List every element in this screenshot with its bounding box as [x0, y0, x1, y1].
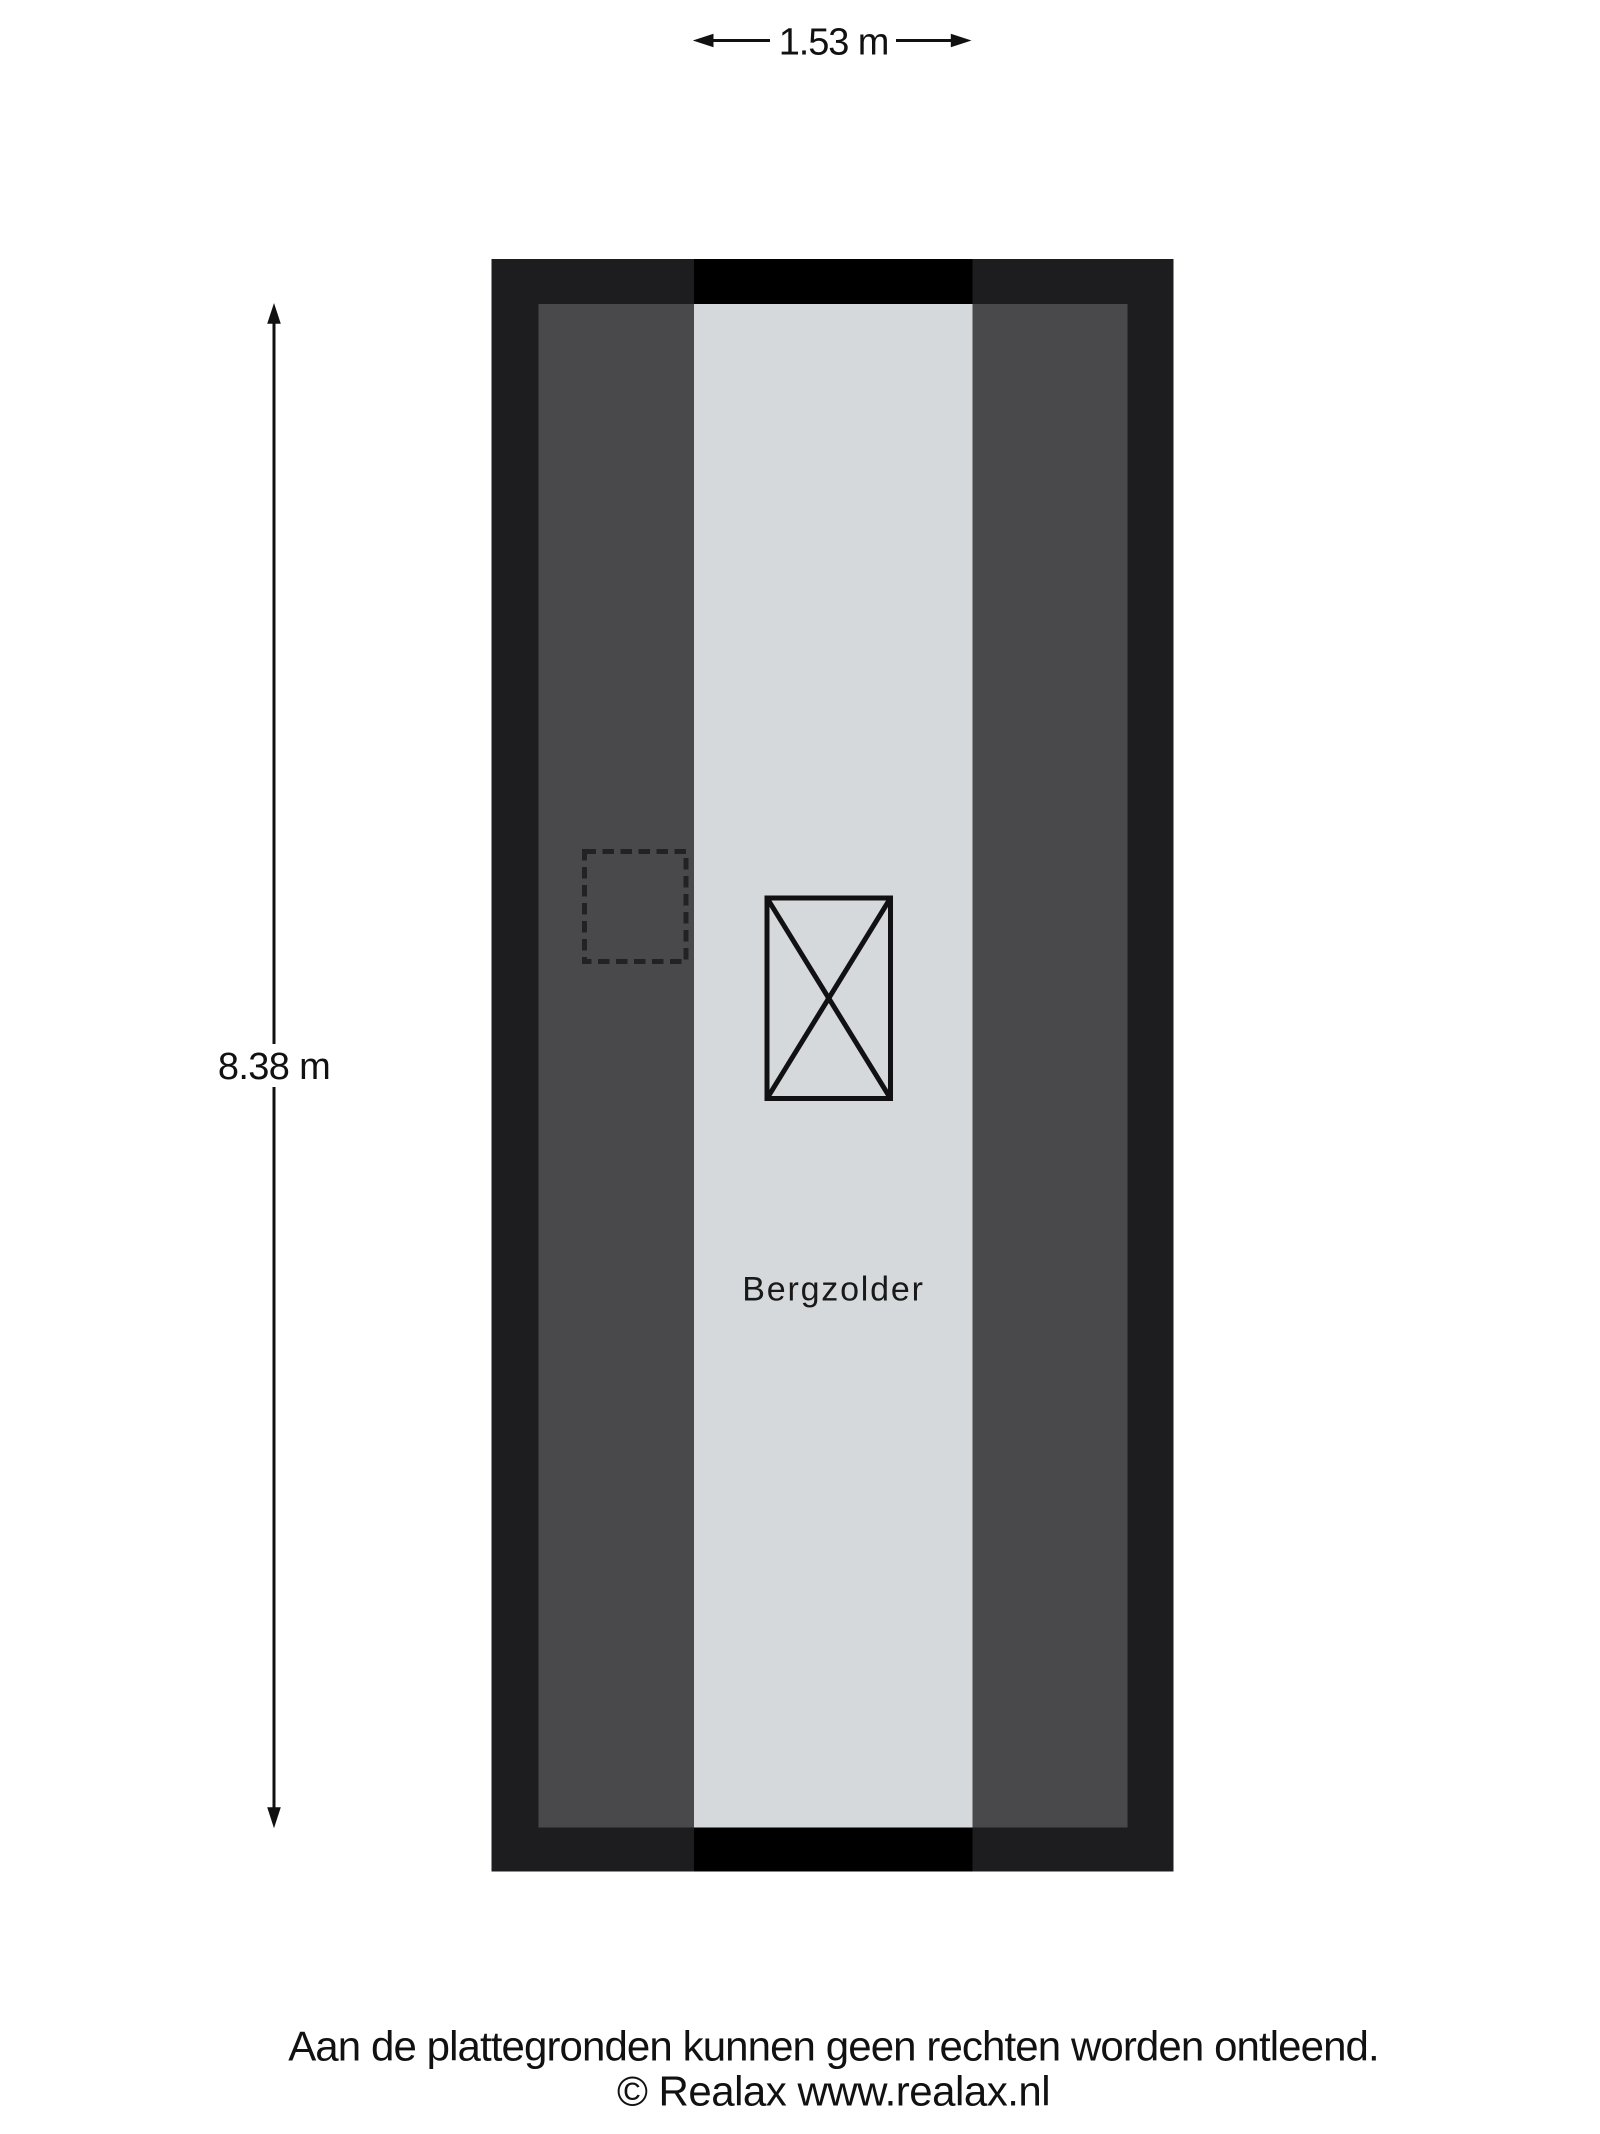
svg-text:Aan de plattegronden kunnen ge: Aan de plattegronden kunnen geen rechten… — [288, 2023, 1379, 2070]
svg-text:1.53 m: 1.53 m — [779, 22, 889, 64]
svg-text:Bergzolder: Bergzolder — [742, 1271, 924, 1309]
svg-text:8.38 m: 8.38 m — [218, 1046, 330, 1088]
svg-text:© Realax www.realax.nl: © Realax www.realax.nl — [617, 2068, 1050, 2115]
